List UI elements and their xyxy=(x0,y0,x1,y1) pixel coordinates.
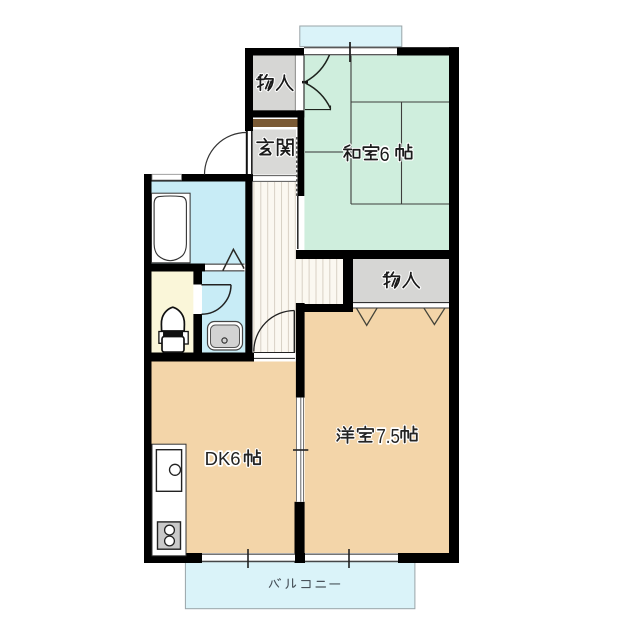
svg-text:7.5: 7.5 xyxy=(376,426,400,448)
svg-text:6: 6 xyxy=(380,143,390,166)
svg-text:DK6: DK6 xyxy=(205,448,241,469)
